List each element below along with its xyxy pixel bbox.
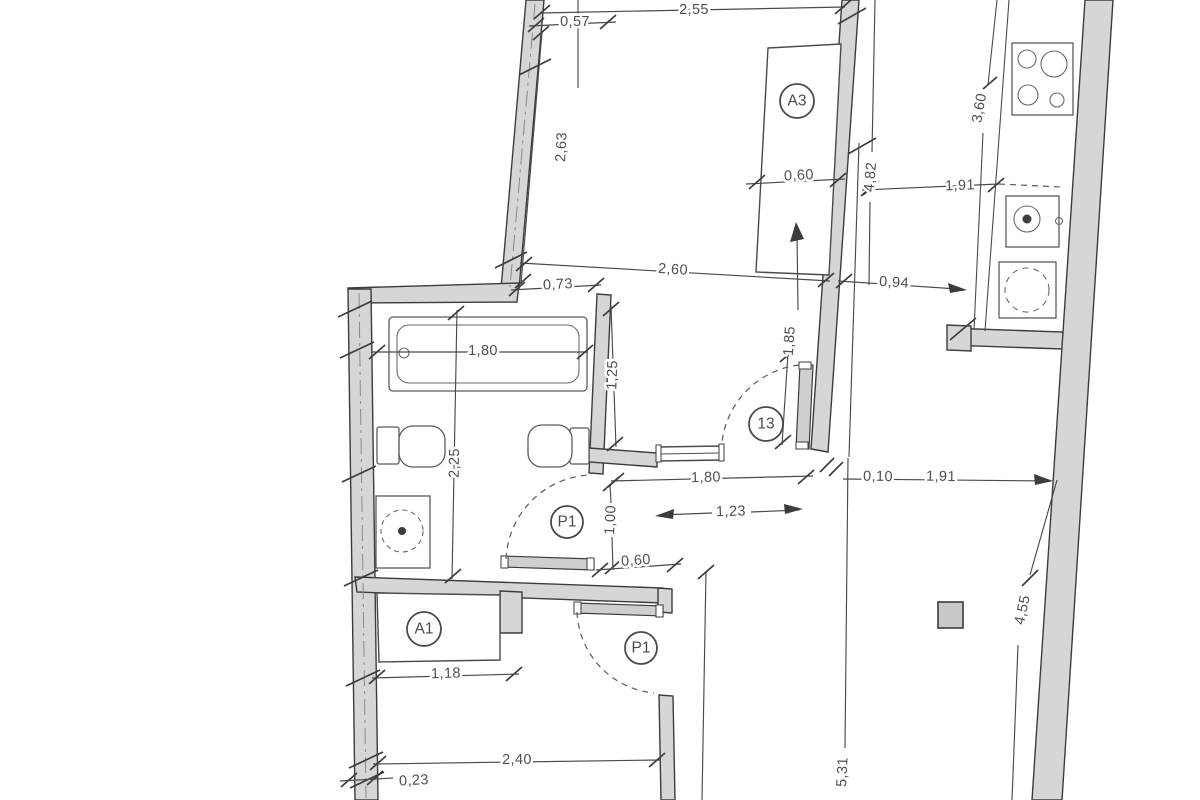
dim-label: 4,82 xyxy=(862,161,881,192)
dim-tick xyxy=(983,77,997,89)
dim-label: 0,10 xyxy=(863,469,893,486)
dim-label: 2,40 xyxy=(502,752,532,768)
counter-edge-line xyxy=(988,0,997,85)
wall-bedroom-lower xyxy=(659,695,675,800)
wall-right-outer xyxy=(1032,0,1113,800)
wall-bathroom-top xyxy=(348,283,519,303)
washbasin-icon xyxy=(376,496,430,568)
label-p1-bedroom-text: P1 xyxy=(632,640,651,657)
dim-label: 2,55 xyxy=(679,2,709,18)
label-a1: A1 xyxy=(407,612,441,646)
kitchen xyxy=(974,0,1073,331)
door-leaf xyxy=(796,364,813,449)
dim-label: 0,60 xyxy=(621,552,652,570)
dim-label: 3,60 xyxy=(969,92,990,124)
bidet-icon xyxy=(528,425,589,467)
label-p1-bathroom: P1 xyxy=(551,506,583,538)
dim-label: 0,73 xyxy=(543,276,574,294)
label-13-text: 13 xyxy=(757,416,774,433)
counter-dashed-line xyxy=(999,184,1061,187)
dim-label: 1,80 xyxy=(468,343,498,359)
dim-label: 2,63 xyxy=(553,132,571,163)
dimension-labels: 2,55 0,57 2,63 0,60 4,82 1,91 3,60 2,60 … xyxy=(399,2,1034,790)
label-13: 13 xyxy=(749,407,783,441)
label-a3-text: A3 xyxy=(788,93,807,110)
toilet-icon xyxy=(377,426,445,467)
stove-icon xyxy=(1012,43,1073,115)
kitchen-sink-icon xyxy=(1006,196,1063,247)
dim-label: 2,25 xyxy=(447,448,464,478)
wall-kitchen-bottom-bump xyxy=(947,325,971,351)
label-p1-bedroom: P1 xyxy=(625,632,657,664)
dim-label: 1,85 xyxy=(781,326,799,357)
floor-plan-canvas: 2,55 0,57 2,63 0,60 4,82 1,91 3,60 2,60 … xyxy=(0,0,1200,800)
label-a1-text: A1 xyxy=(415,621,434,638)
dim-label: 1,23 xyxy=(716,503,746,520)
dim-label: 1,18 xyxy=(431,665,461,682)
door-leaf xyxy=(502,556,594,570)
dim-label: 0,57 xyxy=(560,14,590,30)
wall-top-left xyxy=(501,0,544,289)
dim-label: 1,91 xyxy=(945,177,975,194)
dim-label: 1,80 xyxy=(691,469,721,486)
floor-plan-page: 2,55 0,57 2,63 0,60 4,82 1,91 3,60 2,60 … xyxy=(0,0,1200,800)
dim-label: 2,60 xyxy=(658,261,689,279)
dim-label: 0,60 xyxy=(784,167,815,185)
label-p1-bathroom-text: P1 xyxy=(558,514,577,531)
wall-pier xyxy=(500,591,522,633)
door-leaf xyxy=(575,603,663,616)
dim-label: 1,91 xyxy=(926,469,956,486)
dim-label: 5,31 xyxy=(834,757,852,788)
wall-left-outer xyxy=(348,289,378,800)
radiator-window-sill xyxy=(656,444,724,462)
label-a3: A3 xyxy=(780,84,814,118)
washing-machine-icon xyxy=(999,262,1056,318)
dim-label: 1,25 xyxy=(604,360,621,390)
dim-label: 0,94 xyxy=(879,274,910,292)
dim-label: 0,23 xyxy=(399,772,430,790)
dim-label: 1,00 xyxy=(602,505,620,536)
dim-label: 4,55 xyxy=(1012,594,1034,627)
counter-edge-line xyxy=(974,133,983,330)
column xyxy=(938,602,963,628)
closet-a3 xyxy=(756,44,841,275)
